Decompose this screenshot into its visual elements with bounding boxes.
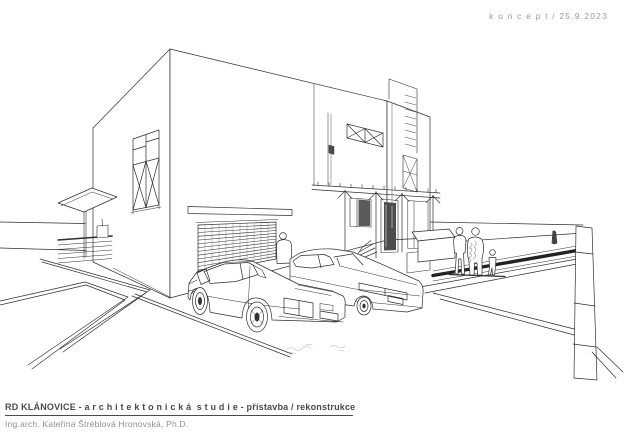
- drawing-sheet: k o n c e p t / 25.9.2023 RD KLÁNOVICE -…: [0, 0, 625, 441]
- low-wall-front: [418, 237, 455, 262]
- sketch-canvas: [0, 0, 625, 441]
- architect-name: Ing.arch. Kateřina Štréblová Hronovská, …: [5, 419, 620, 429]
- figures-group: [449, 228, 505, 277]
- facade-vent: [329, 145, 334, 155]
- project-title: RD KLÁNOVICE - a r c h i t e k t o n i c…: [5, 401, 620, 413]
- house-left-facade: [93, 49, 170, 298]
- adult-figure-1: [454, 228, 467, 275]
- left-ground-lines: [0, 222, 86, 251]
- bollard: [552, 231, 557, 244]
- title-underline: [5, 415, 353, 416]
- house-drawing: [58, 49, 455, 298]
- child-figure: [489, 250, 497, 275]
- concept-date-label: k o n c e p t / 25.9.2023: [489, 11, 608, 21]
- shrub-marks: [286, 344, 345, 354]
- title-block: RD KLÁNOVICE - a r c h i t e k t o n i c…: [5, 401, 620, 429]
- porch-post: [84, 212, 86, 259]
